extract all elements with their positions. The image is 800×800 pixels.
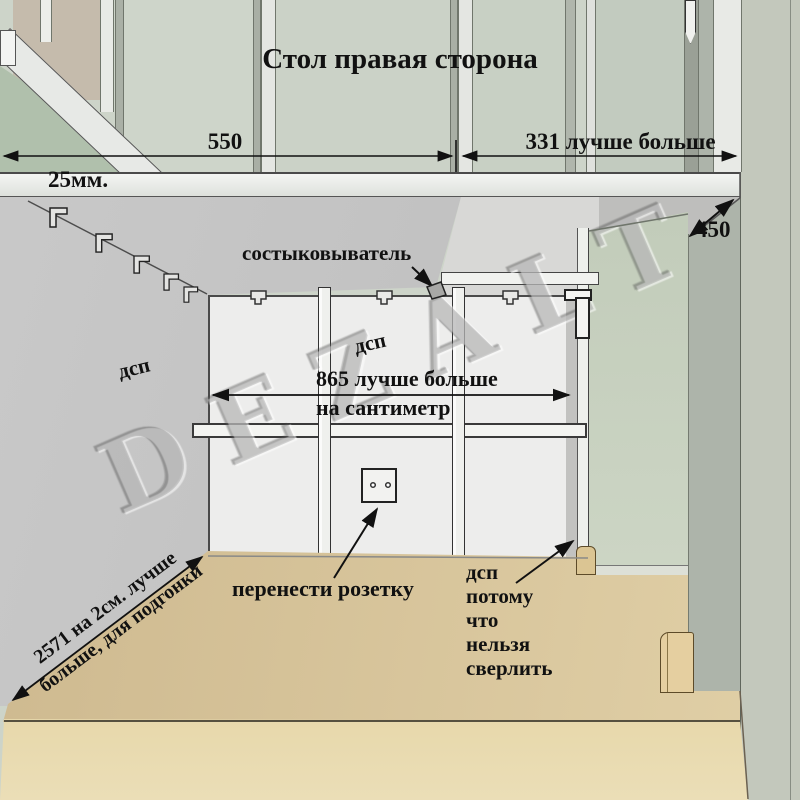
dsp-right-line: нельзя xyxy=(466,632,552,656)
desk-top xyxy=(192,423,587,438)
window-frame-post xyxy=(100,0,114,112)
diagram-canvas: DEZALT xyxy=(0,0,800,800)
window-frame-post xyxy=(450,0,458,172)
dsp-right-line: потому xyxy=(466,584,552,608)
dim-450-label: 450 xyxy=(696,217,731,242)
corbel-block xyxy=(660,632,694,693)
window-frame-post xyxy=(458,0,473,172)
window-frame-post xyxy=(115,0,124,150)
dsp-right-line: что xyxy=(466,608,552,632)
green-side-wall xyxy=(589,212,688,565)
window-frame-post xyxy=(40,0,52,42)
wall-seam-line xyxy=(790,0,791,800)
plinth-block xyxy=(576,546,596,575)
partition-board xyxy=(318,287,331,562)
outlet xyxy=(361,468,397,503)
shelf-end-cap xyxy=(0,30,16,66)
upper-shelf xyxy=(441,272,599,285)
dim-865-label-line2: на сантиметр xyxy=(316,396,450,420)
window-sill-shelf xyxy=(0,172,740,197)
dim-25mm-label: 25мм. xyxy=(48,167,108,192)
dsp-right-note: дсп потому что нельзя сверлить xyxy=(466,560,552,680)
dsp-right-line: сверлить xyxy=(466,656,552,680)
dim-550-label: 550 xyxy=(150,129,300,154)
partition-board xyxy=(452,287,465,562)
dim-865-label-line1: 865 лучше больше xyxy=(316,367,498,391)
dim-331-label: 331 лучше больше xyxy=(498,129,743,154)
bench-front xyxy=(0,719,752,800)
connector-label: состыковыватель xyxy=(242,242,411,265)
right-outer-wall xyxy=(740,0,800,800)
diagram-title: Стол правая сторона xyxy=(180,44,620,76)
outlet-note-label: перенести розетку xyxy=(232,577,414,601)
dsp-right-line: дсп xyxy=(466,560,552,584)
